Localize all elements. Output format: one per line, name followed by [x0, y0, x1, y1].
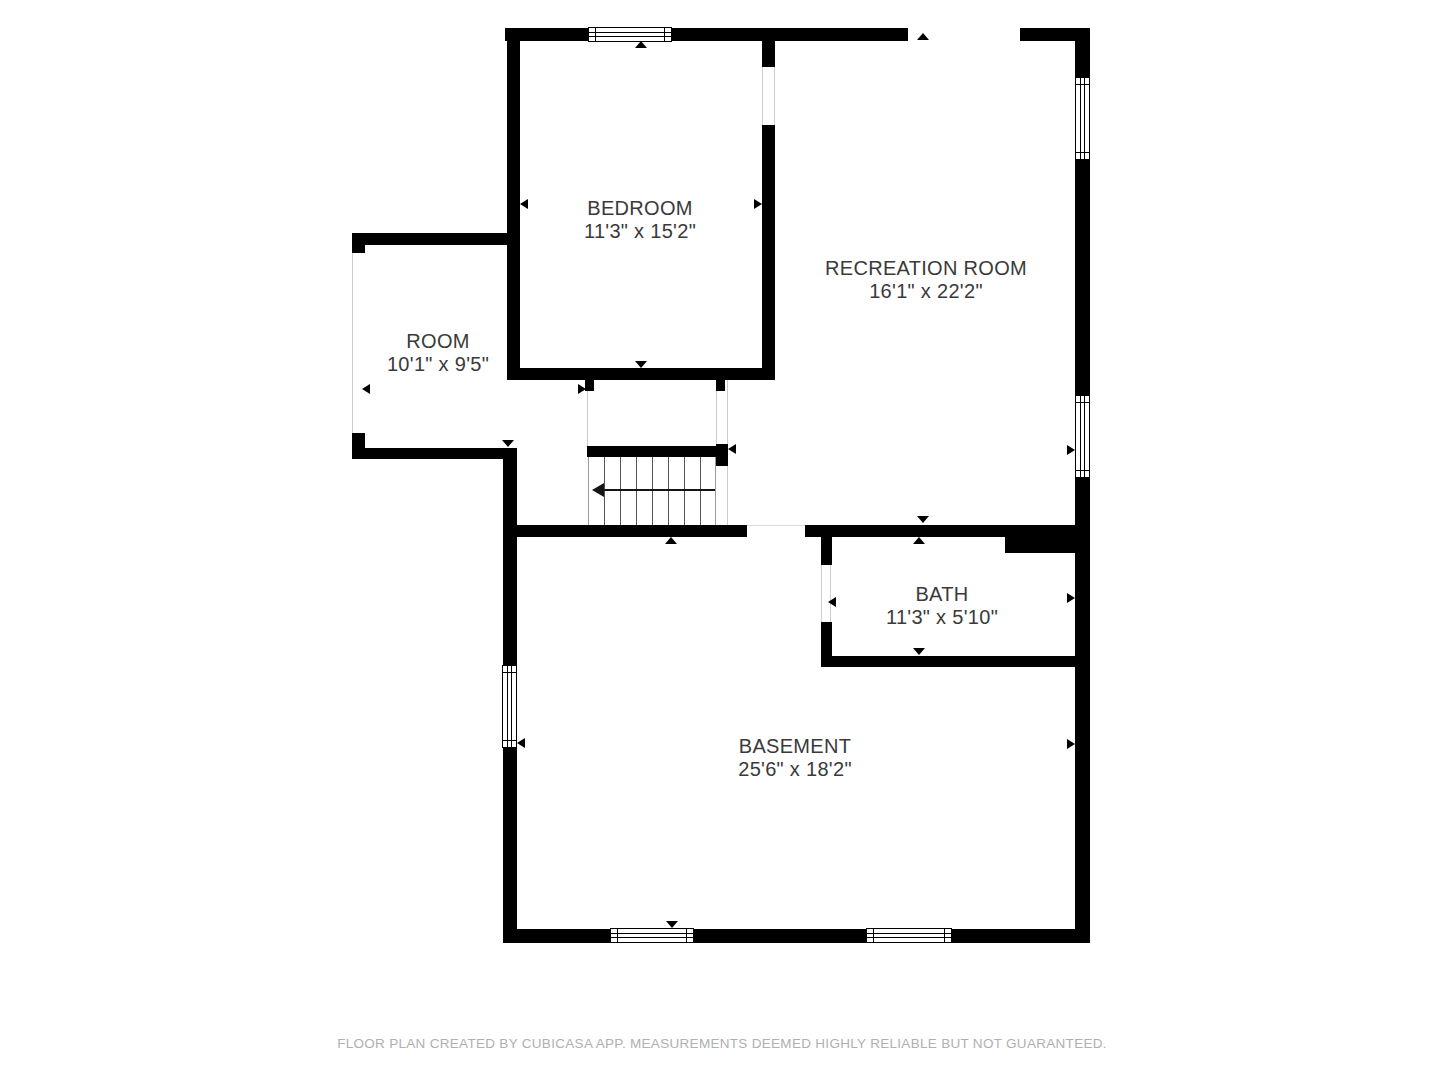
floor-plan: BEDROOM 11'3" x 15'2" RECREATION ROOM 16… — [0, 0, 1440, 1080]
staircase-treads — [588, 457, 716, 525]
dim-arrow-bedroom-top — [635, 41, 647, 48]
wall-bedroom-bottom — [507, 368, 775, 380]
opening-line-bedroom-door-a — [762, 67, 763, 125]
wall-hall-jamb-left — [585, 380, 594, 391]
dim-arrow-basement-bottom — [666, 921, 678, 928]
room-name: RECREATION ROOM — [825, 257, 1027, 280]
wall-room-left-stub-top — [352, 233, 365, 253]
wall-bath-left-stub-top — [821, 525, 832, 565]
dim-arrow-room-left — [362, 384, 370, 394]
opening-line-room-left — [352, 253, 353, 433]
room-name: BATH — [886, 583, 998, 606]
room-name: BEDROOM — [584, 197, 696, 220]
window-bedroom-top — [588, 27, 672, 42]
wall-right-exterior — [1075, 28, 1090, 943]
wall-bath-notch — [1005, 525, 1075, 553]
dim-arrow-bath-top — [913, 537, 925, 544]
wall-bath-bottom — [821, 656, 1075, 667]
dim-arrow-bath-left — [828, 597, 836, 607]
footer-disclaimer: FLOOR PLAN CREATED BY CUBICASA APP. MEAS… — [337, 1036, 1107, 1051]
dim-arrow-recreation-right — [1067, 445, 1075, 455]
opening-line-bath-door-b — [830, 565, 831, 622]
wall-bedroom-right-lower — [762, 125, 775, 380]
wall-bottom-exterior — [503, 929, 1090, 943]
room-dimensions: 25'6" x 18'2" — [738, 758, 852, 781]
dim-arrow-room-right — [578, 384, 586, 394]
room-label-bath: BATH 11'3" x 5'10" — [886, 583, 998, 629]
room-label-room: ROOM 10'1" x 9'5" — [387, 330, 489, 376]
opening-line-bedroom-door-b — [774, 67, 775, 125]
room-label-recreation-room: RECREATION ROOM 16'1" x 22'2" — [825, 257, 1027, 303]
dim-arrow-bedroom-bottom — [635, 361, 647, 368]
wall-basement-top-left — [503, 525, 747, 537]
wall-room-top — [352, 233, 507, 245]
window-recreation-right-lower — [1075, 395, 1090, 478]
dim-arrow-bedroom-right — [754, 199, 762, 209]
dim-arrow-recreation-left — [728, 444, 736, 454]
room-dimensions: 11'3" x 15'2" — [584, 220, 696, 243]
room-label-bedroom: BEDROOM 11'3" x 15'2" — [584, 197, 696, 243]
opening-line-bath-door-a — [821, 565, 822, 622]
room-name: BASEMENT — [738, 735, 852, 758]
dim-arrow-recreation-bottom — [917, 516, 929, 523]
wall-bedroom-left — [507, 28, 520, 380]
stair-direction-arrowhead — [592, 483, 604, 497]
dim-arrow-recreation-top — [917, 33, 929, 40]
opening-line-hall-left — [587, 391, 588, 446]
wall-stair-top — [587, 446, 717, 457]
window-recreation-right-upper — [1075, 77, 1090, 160]
dim-arrow-bath-bottom — [913, 648, 925, 655]
window-basement-bottom-left — [610, 928, 694, 943]
window-basement-bottom-right — [866, 928, 952, 943]
dim-arrow-bath-right — [1067, 593, 1075, 603]
wall-bedroom-right-upper — [762, 28, 775, 67]
dim-arrow-room-bottom — [502, 440, 514, 447]
dim-arrow-bedroom-left — [520, 199, 528, 209]
opening-line-hall-right — [716, 391, 717, 444]
room-label-basement: BASEMENT 25'6" x 18'2" — [738, 735, 852, 781]
wall-hall-jamb-right — [716, 380, 725, 391]
opening-line-basement-door — [747, 525, 805, 526]
room-dimensions: 10'1" x 9'5" — [387, 353, 489, 376]
wall-top-left-segment — [505, 28, 908, 41]
dim-arrow-basement-top — [665, 537, 677, 544]
window-basement-left — [502, 665, 517, 748]
dim-arrow-basement-left — [517, 738, 525, 748]
dim-arrow-basement-right — [1067, 739, 1075, 749]
wall-room-bottom — [352, 448, 515, 459]
stair-direction-arrow — [602, 489, 715, 491]
room-dimensions: 16'1" x 22'2" — [825, 280, 1027, 303]
wall-stair-block — [716, 444, 728, 466]
room-dimensions: 11'3" x 5'10" — [886, 606, 998, 629]
room-name: ROOM — [387, 330, 489, 353]
